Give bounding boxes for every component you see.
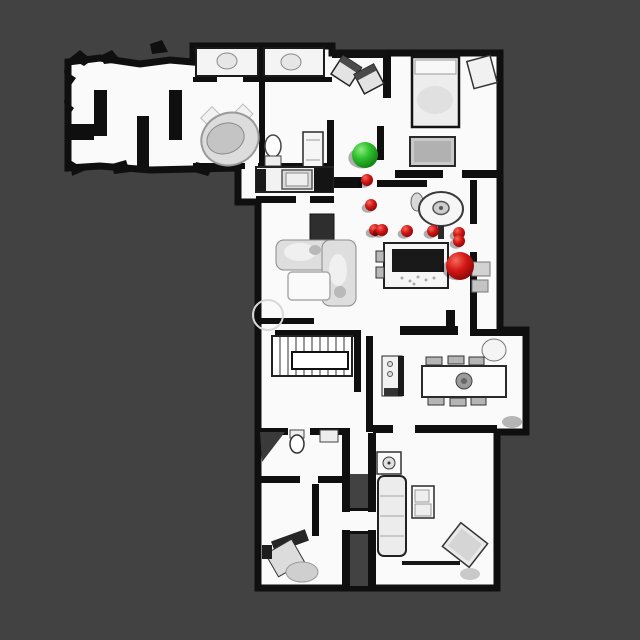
goal-marker xyxy=(446,252,474,280)
hall-cabinet xyxy=(472,262,490,276)
floorplan-render xyxy=(0,0,640,640)
sink-left xyxy=(217,53,237,69)
stair-console xyxy=(292,352,348,369)
waypoint-marker xyxy=(453,235,465,247)
island-top xyxy=(392,249,444,272)
toilet-tank xyxy=(265,156,281,166)
start-marker xyxy=(352,142,378,168)
waypoint-marker xyxy=(376,224,388,236)
kitchen-counter xyxy=(256,167,333,192)
round-chair xyxy=(482,339,506,361)
sink xyxy=(320,430,338,442)
coffee-table xyxy=(288,272,330,300)
waypoint-marker xyxy=(361,174,373,186)
staircase xyxy=(272,336,352,376)
stool xyxy=(376,251,384,262)
plant-blob xyxy=(460,568,480,580)
sink-right xyxy=(281,54,301,70)
fireplace xyxy=(310,214,334,240)
stool xyxy=(376,267,384,278)
pillows xyxy=(415,60,456,74)
hall-cabinet xyxy=(472,280,488,292)
waypoint-marker xyxy=(365,199,377,211)
waypoint-marker xyxy=(427,225,439,237)
scene-viewport xyxy=(0,0,640,640)
plant-blob xyxy=(502,416,522,428)
tv-console xyxy=(402,561,460,565)
shower-fixture xyxy=(303,132,323,170)
toilet xyxy=(265,135,281,157)
toilet xyxy=(290,435,304,453)
pouf xyxy=(286,562,318,582)
waypoint-marker xyxy=(401,225,413,237)
